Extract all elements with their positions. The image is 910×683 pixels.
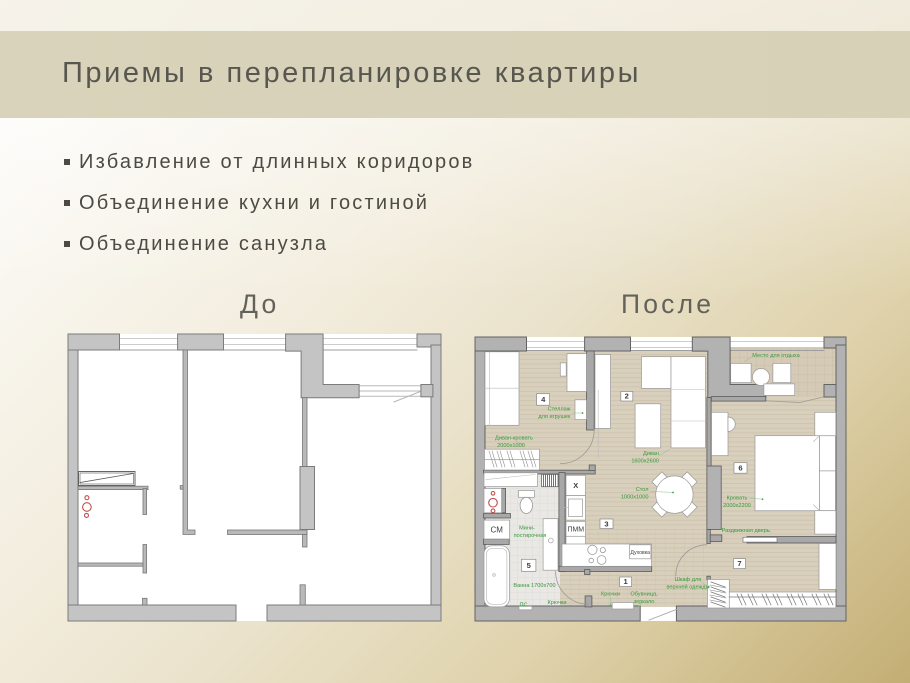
svg-text:6: 6 bbox=[738, 464, 742, 473]
svg-text:2: 2 bbox=[625, 392, 629, 401]
svg-text:СМ: СМ bbox=[491, 526, 504, 535]
svg-text:1000х1000: 1000х1000 bbox=[621, 495, 649, 501]
svg-text:Стол: Стол bbox=[636, 487, 649, 493]
svg-text:2000х1000: 2000х1000 bbox=[497, 443, 525, 449]
svg-text:постирочная: постирочная bbox=[514, 533, 547, 539]
svg-text:Раздвижная дверь: Раздвижная дверь bbox=[722, 528, 770, 534]
svg-text:Кровать: Кровать bbox=[727, 496, 748, 502]
svg-text:Духовка: Духовка bbox=[630, 550, 650, 556]
svg-text:Крючки: Крючки bbox=[601, 592, 620, 598]
svg-text:X: X bbox=[573, 481, 578, 490]
svg-text:ПС: ПС bbox=[519, 603, 527, 609]
svg-text:1600х2600: 1600х2600 bbox=[631, 459, 659, 465]
svg-text:Шкаф для: Шкаф для bbox=[675, 577, 702, 583]
svg-text:Обувница,: Обувница, bbox=[630, 592, 658, 598]
svg-text:2000х2200: 2000х2200 bbox=[723, 503, 751, 509]
svg-text:ПММ: ПММ bbox=[567, 527, 584, 534]
svg-text:3: 3 bbox=[604, 520, 608, 529]
svg-text:Стеллаж: Стеллаж bbox=[548, 407, 571, 413]
svg-text:зеркало: зеркало bbox=[634, 599, 655, 605]
svg-text:верхней одежды: верхней одежды bbox=[666, 584, 709, 591]
svg-text:Диван-кровать: Диван-кровать bbox=[495, 436, 533, 442]
svg-text:Диван: Диван bbox=[643, 451, 659, 457]
svg-text:Место для отдыха: Место для отдыха bbox=[752, 353, 800, 359]
svg-text:Ванна 1700х700: Ванна 1700х700 bbox=[513, 583, 555, 589]
svg-text:Крючки: Крючки bbox=[548, 600, 567, 606]
svg-text:для игрушек: для игрушек bbox=[538, 414, 571, 420]
svg-text:Мини-: Мини- bbox=[519, 526, 535, 532]
svg-text:7: 7 bbox=[737, 559, 741, 568]
